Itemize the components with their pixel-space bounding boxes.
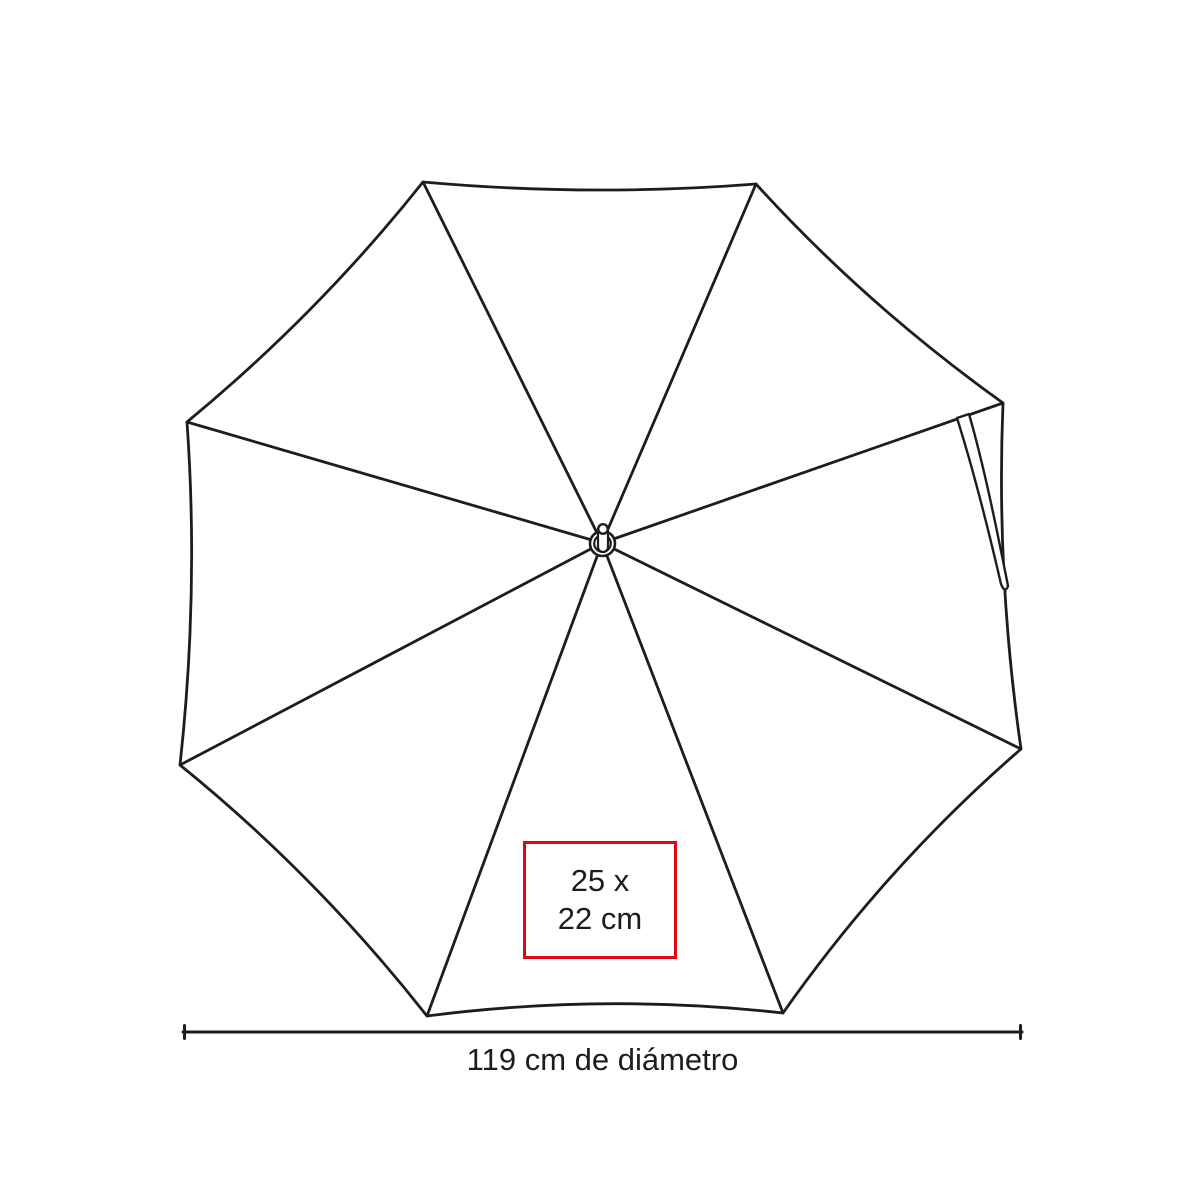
product-spec-canvas: 25 x 22 cm 119 cm de diámetro	[0, 0, 1200, 1200]
diameter-label: 119 cm de diámetro	[183, 1042, 1022, 1078]
print-area-size-line1: 25 x	[571, 862, 630, 900]
print-area-size-line2: 22 cm	[558, 900, 642, 938]
dimension-line	[183, 1026, 1022, 1039]
umbrella-top-view-illustration	[0, 0, 1200, 1200]
print-area-box: 25 x 22 cm	[523, 841, 677, 959]
